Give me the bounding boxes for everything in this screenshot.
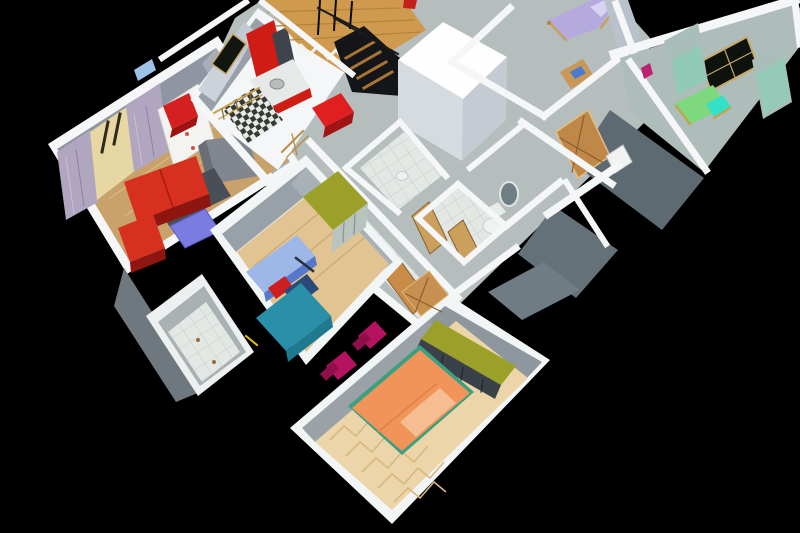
cabinet-handle-3 — [191, 146, 195, 150]
apartment-3d-render — [0, 0, 800, 533]
green-room-wall-right — [795, 2, 800, 44]
floorplan-scene-svg — [0, 0, 800, 533]
wc-mirror — [500, 182, 518, 206]
stairs-red-object — [403, 0, 417, 9]
shape-layer — [48, 0, 800, 524]
balcony-dot-1 — [196, 338, 200, 342]
balcony-dot-2 — [212, 360, 216, 364]
cabinet-handle-2 — [185, 132, 189, 136]
bathroom-sink — [396, 172, 408, 181]
kitchen-sink — [270, 79, 284, 89]
purple-bed-post-1 — [547, 21, 551, 25]
